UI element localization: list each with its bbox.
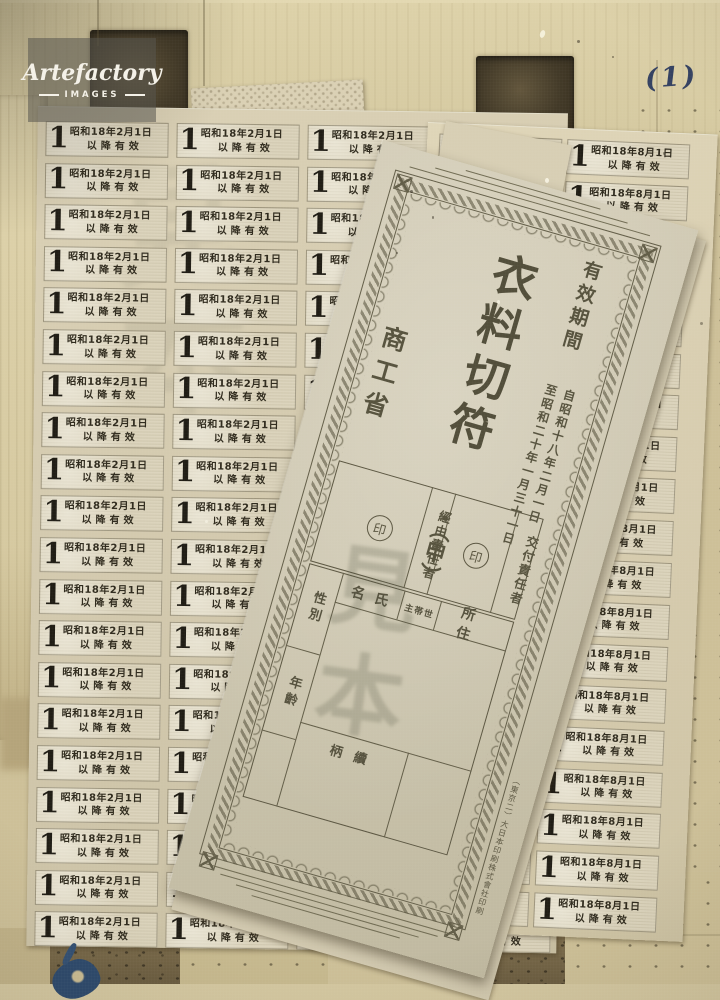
stamp-denomination: 1 — [47, 206, 68, 235]
speck — [545, 178, 549, 183]
stamp-denomination: 1 — [176, 374, 197, 403]
ration-stamp: 1昭和18年2月1日以降有效 — [35, 828, 158, 865]
stamp-text: 昭和18年2月1日以降有效 — [69, 167, 152, 195]
stamp-text: 昭和18年2月1日以降有效 — [68, 250, 151, 278]
stamp-text: 昭和18年2月1日以降有效 — [64, 500, 147, 528]
stamp-denomination: 1 — [174, 499, 195, 528]
stamp-validity-line: 以降有效 — [64, 513, 147, 528]
stamp-date-line: 昭和18年2月1日 — [196, 460, 279, 475]
stamp-validity-line: 以降有效 — [67, 305, 150, 320]
stamp-date-line: 昭和18年2月1日 — [69, 209, 152, 224]
watermark-dash — [125, 94, 145, 96]
stamp-date-line: 昭和18年2月1日 — [65, 458, 148, 473]
stamp-validity-line: 以降有效 — [195, 515, 278, 530]
seal-character: 印 — [467, 545, 485, 567]
stamp-denomination: 1 — [310, 126, 331, 155]
stamp-denomination: 1 — [174, 540, 195, 569]
stamp-text: 昭和18年2月1日以降有效 — [66, 375, 149, 403]
stamp-text: 昭和18年2月1日以降有效 — [200, 169, 283, 197]
stamp-text: 昭和18年2月1日以降有效 — [198, 294, 281, 322]
stamp-denomination: 1 — [168, 915, 189, 944]
wood-strip-bottom — [0, 984, 720, 1000]
stamp-text: 昭和18年2月1日以降有效 — [59, 916, 142, 944]
ration-stamp: 1昭和18年2月1日以降有效 — [173, 373, 296, 410]
stamp-text: 昭和18年2月1日以降有效 — [59, 874, 142, 902]
stamp-text: 昭和18年2月1日以降有效 — [63, 625, 146, 653]
ration-stamp: 1昭和18年2月1日以降有效 — [43, 287, 166, 324]
ration-stamp: 1昭和18年8月1日以降有效 — [535, 851, 659, 891]
stamp-denomination: 1 — [171, 748, 192, 777]
ration-stamp: 1昭和18年2月1日以降有效 — [40, 495, 163, 532]
stamp-denomination: 1 — [47, 247, 68, 276]
stamp-denomination: 1 — [44, 414, 65, 443]
ration-stamp: 1昭和18年2月1日以降有效 — [38, 620, 161, 657]
stamp-denomination: 1 — [37, 913, 58, 942]
ration-stamp: 1昭和18年2月1日以降有效 — [172, 414, 295, 451]
stamp-validity-line: 以降有效 — [60, 846, 143, 861]
stamp-denomination: 1 — [308, 293, 329, 322]
stamp-denomination: 1 — [48, 123, 69, 152]
stamp-denomination: 1 — [43, 497, 64, 526]
stamp-text: 昭和18年2月1日以降有效 — [67, 333, 150, 361]
ration-stamp: 1昭和18年2月1日以降有效 — [45, 121, 168, 158]
stamp-validity-line: 以降有效 — [69, 181, 152, 196]
stamp-validity-line: 以降有效 — [65, 472, 148, 487]
speck — [700, 322, 703, 325]
stamp-validity-line: 以降有效 — [63, 638, 146, 653]
stamp-validity-line: 以降有效 — [557, 911, 640, 928]
watermark-brand: Artefactory — [22, 60, 161, 86]
stamp-text: 昭和18年2月1日以降有效 — [65, 458, 148, 486]
stamp-validity-line: 以降有效 — [65, 430, 148, 445]
stamp-date-line: 昭和18年2月1日 — [332, 129, 415, 144]
stamp-text: 昭和18年2月1日以降有效 — [196, 418, 279, 446]
stamp-validity-line: 以降有效 — [196, 432, 279, 447]
stamp-validity-line: 以降有效 — [199, 266, 282, 281]
stamp-denomination: 1 — [179, 124, 200, 153]
ration-stamp: 1昭和18年2月1日以降有效 — [44, 246, 167, 283]
stamp-validity-line: 以降有效 — [563, 786, 646, 803]
stamp-text: 昭和18年8月1日以降有效 — [561, 814, 644, 845]
corner-ornament — [199, 851, 219, 871]
stamp-validity-line: 以降有效 — [198, 307, 281, 322]
stamp-denomination: 1 — [175, 457, 196, 486]
stamp-date-line: 昭和18年2月1日 — [66, 417, 149, 432]
stamp-denomination: 1 — [179, 166, 200, 195]
ration-stamp: 1昭和18年8月1日以降有效 — [533, 893, 657, 933]
stamp-date-line: 昭和18年2月1日 — [59, 916, 142, 931]
stamp-text: 昭和18年2月1日以降有效 — [197, 377, 280, 405]
ration-stamp: 1昭和18年2月1日以降有效 — [38, 662, 161, 699]
stamp-text: 昭和18年2月1日以降有效 — [60, 791, 143, 819]
stamp-denomination: 1 — [310, 168, 331, 197]
stamp-validity-line: 以降有效 — [70, 139, 153, 154]
stamp-text: 昭和18年2月1日以降有效 — [65, 417, 148, 445]
stamp-date-line: 昭和18年2月1日 — [197, 377, 280, 392]
stamp-text: 昭和18年8月1日以降有效 — [590, 144, 673, 175]
stamp-denomination: 1 — [540, 810, 561, 840]
stamp-validity-line: 以降有效 — [61, 721, 144, 736]
stamp-text: 昭和18年2月1日以降有效 — [67, 292, 150, 320]
ration-stamp: 1昭和18年2月1日以降有效 — [173, 331, 296, 368]
stamp-validity-line: 以降有效 — [200, 182, 283, 197]
stamp-text: 昭和18年8月1日以降有效 — [566, 688, 649, 719]
stamp-validity-line: 以降有效 — [197, 390, 280, 405]
stamp-date-line: 昭和18年2月1日 — [60, 791, 143, 806]
stamp-validity-line: 以降有效 — [61, 763, 144, 778]
stamp-denomination: 1 — [173, 582, 194, 611]
speck — [577, 40, 580, 43]
stamp-date-line: 昭和18年2月1日 — [61, 749, 144, 764]
stamp-denomination: 1 — [171, 707, 192, 736]
stamp-text: 昭和18年2月1日以降有效 — [68, 209, 151, 237]
ration-stamp: 1昭和18年2月1日以降有效 — [172, 456, 295, 493]
stamp-validity-line: 以降有效 — [201, 141, 284, 156]
speck — [396, 252, 398, 254]
ration-stamp: 1昭和18年2月1日以降有效 — [41, 412, 164, 449]
watermark-subtitle: IMAGES — [64, 90, 119, 100]
stamp-date-line: 昭和18年2月1日 — [66, 375, 149, 390]
stamp-date-line: 昭和18年2月1日 — [67, 333, 150, 348]
stamp-text: 昭和18年2月1日以降有效 — [62, 666, 145, 694]
photograph-ration-coupons: 見本 1昭和18年2月1日以降有效1昭和18年2月1日以降有效1昭和18年2月1… — [0, 0, 720, 1000]
stamp-denomination: 1 — [175, 416, 196, 445]
speck — [432, 216, 434, 219]
stamp-denomination: 1 — [176, 332, 197, 361]
stamp-validity-line: 以降有效 — [64, 555, 147, 570]
speck — [612, 56, 614, 58]
stamp-denomination: 1 — [172, 624, 193, 653]
stamp-denomination: 1 — [40, 747, 61, 776]
ration-stamp: 1昭和18年2月1日以降有效 — [174, 289, 297, 326]
seal-character: 印 — [371, 517, 389, 539]
stamp-validity-line: 以降有效 — [566, 702, 649, 719]
stamp-text: 昭和18年2月1日以降有效 — [199, 252, 282, 280]
speck — [205, 520, 208, 523]
ration-stamp: 1昭和18年2月1日以降有效 — [175, 248, 298, 285]
ration-stamp: 1昭和18年2月1日以降有效 — [176, 165, 299, 202]
stamp-date-line: 昭和18年2月1日 — [198, 335, 281, 350]
stamp-denomination: 1 — [45, 372, 66, 401]
stamp-date-line: 昭和18年2月1日 — [62, 708, 145, 723]
stamp-date-line: 昭和18年2月1日 — [200, 210, 283, 225]
stamp-validity-line: 以降有效 — [59, 929, 142, 944]
stamp-validity-line: 以降有效 — [559, 869, 642, 886]
stamp-date-line: 昭和18年2月1日 — [201, 127, 284, 142]
stamp-validity-line: 以降有效 — [68, 222, 151, 237]
ration-stamp: 1昭和18年2月1日以降有效 — [37, 703, 160, 740]
stamp-denomination: 1 — [538, 852, 559, 882]
stamp-validity-line: 以降有效 — [66, 389, 149, 404]
stamp-date-line: 昭和18年2月1日 — [195, 502, 278, 517]
stamp-date-line: 昭和18年2月1日 — [198, 294, 281, 309]
stamp-date-line: 昭和18年2月1日 — [69, 167, 152, 182]
ration-stamp: 1昭和18年2月1日以降有效 — [36, 787, 159, 824]
ration-stamp: 1昭和18年8月1日以降有效 — [537, 809, 661, 849]
stamp-validity-line: 以降有效 — [196, 474, 279, 489]
stamp-denomination: 1 — [309, 251, 330, 280]
stamp-denomination: 1 — [172, 665, 193, 694]
stamp-date-line: 昭和18年2月1日 — [200, 169, 283, 184]
stamp-text: 昭和18年8月1日以降有效 — [559, 856, 642, 887]
ration-stamp: 1昭和18年2月1日以降有效 — [42, 371, 165, 408]
ration-stamp: 1昭和18年2月1日以降有效 — [41, 454, 164, 491]
ration-stamp: 1昭和18年2月1日以降有效 — [35, 870, 158, 907]
stamp-validity-line: 以降有效 — [60, 804, 143, 819]
stamp-date-line: 昭和18年2月1日 — [67, 292, 150, 307]
stamp-date-line: 昭和18年2月1日 — [68, 250, 151, 265]
stamp-denomination: 1 — [38, 830, 59, 859]
ration-stamp: 1昭和18年2月1日以降有效 — [42, 329, 165, 366]
stamp-denomination: 1 — [170, 790, 191, 819]
stamp-date-line: 昭和18年2月1日 — [62, 666, 145, 681]
stamp-text: 昭和18年2月1日以降有效 — [61, 708, 144, 736]
ration-stamp: 1昭和18年2月1日以降有效 — [45, 163, 168, 200]
stamp-text: 昭和18年2月1日以降有效 — [196, 460, 279, 488]
ration-stamp: 1昭和18年8月1日以降有效 — [538, 767, 662, 807]
stamp-date-line: 昭和18年2月1日 — [60, 833, 143, 848]
stamp-denomination: 1 — [178, 208, 199, 237]
ration-stamp: 1昭和18年2月1日以降有效 — [176, 123, 299, 160]
stamp-denomination: 1 — [41, 663, 62, 692]
stamp-text: 昭和18年2月1日以降有效 — [70, 125, 153, 153]
corner-ornament — [444, 921, 464, 941]
ration-stamp: 1昭和18年8月1日以降有效 — [566, 139, 690, 179]
stock-watermark: Artefactory IMAGES — [28, 38, 156, 122]
stamp-denomination: 1 — [45, 331, 66, 360]
stamp-text: 昭和18年2月1日以降有效 — [199, 210, 282, 238]
stamp-text: 昭和18年2月1日以降有效 — [63, 583, 146, 611]
stamp-denomination: 1 — [569, 141, 590, 171]
stamp-denomination: 1 — [39, 788, 60, 817]
stamp-text: 昭和18年2月1日以降有效 — [60, 833, 143, 861]
ration-stamp: 1昭和18年2月1日以降有效 — [44, 204, 167, 241]
stamp-validity-line: 以降有效 — [68, 264, 151, 279]
stamp-validity-line: 以降有效 — [59, 888, 142, 903]
stamp-denomination: 1 — [42, 580, 63, 609]
watermark-dash — [39, 94, 59, 96]
stamp-date-line: 昭和18年2月1日 — [70, 125, 153, 140]
stamp-date-line: 昭和18年2月1日 — [63, 583, 146, 598]
stamp-date-line: 昭和18年2月1日 — [64, 541, 147, 556]
wood-seam — [203, 0, 205, 86]
stamp-denomination: 1 — [41, 622, 62, 651]
stamp-text: 昭和18年2月1日以降有效 — [61, 749, 144, 777]
stamp-date-line: 昭和18年2月1日 — [65, 500, 148, 515]
stamp-date-line: 昭和18年2月1日 — [63, 625, 146, 640]
stamp-denomination: 1 — [177, 291, 198, 320]
stamp-denomination: 1 — [536, 894, 557, 924]
stamp-denomination: 1 — [48, 164, 69, 193]
speck — [410, 190, 413, 193]
stamp-denomination: 1 — [178, 249, 199, 278]
stamp-validity-line: 以降有效 — [561, 827, 644, 844]
speck — [663, 152, 665, 155]
speck — [624, 700, 627, 703]
stamp-text: 昭和18年8月1日以降有效 — [565, 730, 648, 761]
stamp-validity-line: 以降有效 — [63, 596, 146, 611]
ration-stamp: 1昭和18年2月1日以降有效 — [39, 537, 162, 574]
stamp-text: 昭和18年2月1日以降有效 — [195, 502, 278, 530]
stamp-validity-line: 以降有效 — [590, 158, 673, 175]
stamp-denomination: 1 — [46, 289, 67, 318]
stamp-validity-line: 以降有效 — [67, 347, 150, 362]
watermark-subrow: IMAGES — [39, 90, 144, 100]
ration-stamp: 1昭和18年2月1日以降有效 — [37, 745, 160, 782]
stamp-text: 昭和18年8月1日以降有效 — [563, 772, 646, 803]
stamp-text: 昭和18年2月1日以降有效 — [64, 541, 147, 569]
stamp-date-line: 昭和18年2月1日 — [199, 252, 282, 267]
stamp-denomination: 1 — [309, 209, 330, 238]
handwritten-number: (1) — [644, 60, 699, 95]
ration-stamp: 1昭和18年2月1日以降有效 — [175, 206, 298, 243]
stamp-denomination: 1 — [38, 871, 59, 900]
stamp-denomination: 1 — [40, 705, 61, 734]
stamp-denomination: 1 — [43, 539, 64, 568]
stamp-date-line: 昭和18年2月1日 — [197, 418, 280, 433]
speck — [497, 300, 500, 304]
stamp-text: 昭和18年2月1日以降有效 — [198, 335, 281, 363]
stamp-date-line: 昭和18年2月1日 — [59, 874, 142, 889]
stamp-validity-line: 以降有效 — [565, 744, 648, 761]
stamp-validity-line: 以降有效 — [198, 349, 281, 364]
ration-stamp: 1昭和18年2月1日以降有效 — [39, 579, 162, 616]
stamp-validity-line: 以降有效 — [62, 680, 145, 695]
ration-stamp: 1昭和18年2月1日以降有效 — [34, 911, 157, 948]
stamp-text: 昭和18年8月1日以降有效 — [557, 898, 640, 929]
stamp-denomination: 1 — [44, 455, 65, 484]
stamp-validity-line: 以降有效 — [199, 224, 282, 239]
stamp-text: 昭和18年2月1日以降有效 — [201, 127, 284, 155]
